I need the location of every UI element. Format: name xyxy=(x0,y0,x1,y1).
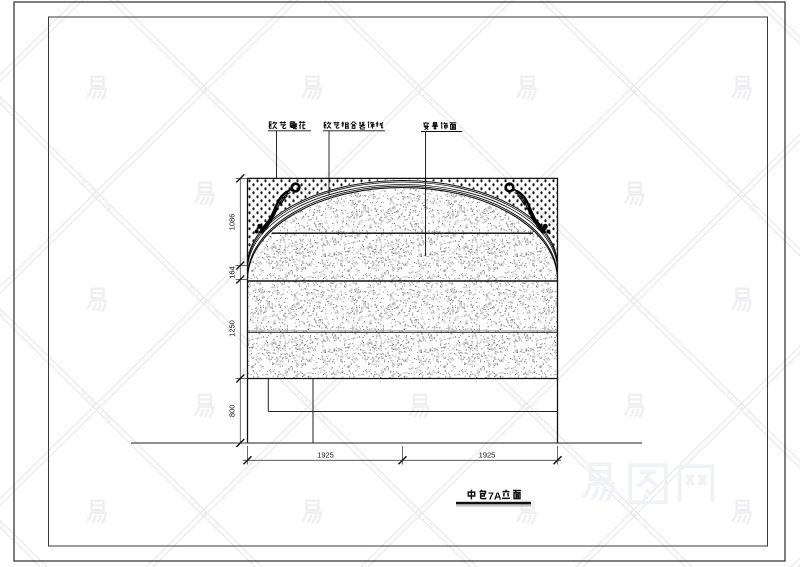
svg-text:1925: 1925 xyxy=(317,451,334,460)
svg-text:1250: 1250 xyxy=(228,320,237,337)
svg-text:800: 800 xyxy=(228,405,237,418)
svg-text:1925: 1925 xyxy=(479,451,496,460)
svg-text:164: 164 xyxy=(228,266,237,279)
svg-text:7A: 7A xyxy=(488,491,502,503)
svg-text:1086: 1086 xyxy=(228,214,237,231)
